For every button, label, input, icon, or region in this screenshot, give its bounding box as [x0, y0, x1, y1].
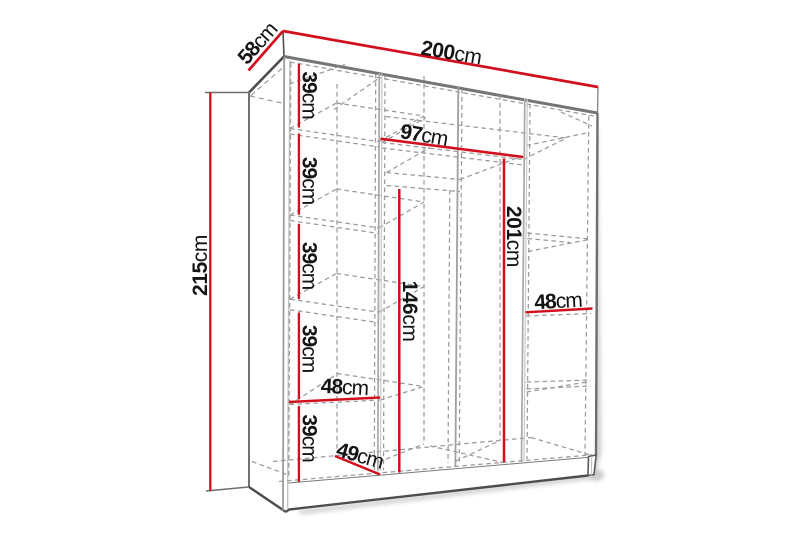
svg-text:215cm: 215cm: [189, 235, 212, 296]
svg-text:39cm: 39cm: [297, 325, 320, 373]
svg-text:201cm: 201cm: [502, 206, 525, 267]
svg-text:39cm: 39cm: [297, 414, 320, 462]
svg-text:48cm: 48cm: [320, 375, 369, 400]
svg-text:39cm: 39cm: [297, 71, 320, 119]
svg-text:39cm: 39cm: [297, 242, 320, 290]
svg-text:146cm: 146cm: [398, 280, 421, 341]
svg-text:39cm: 39cm: [297, 157, 320, 205]
svg-text:48cm: 48cm: [534, 289, 583, 314]
